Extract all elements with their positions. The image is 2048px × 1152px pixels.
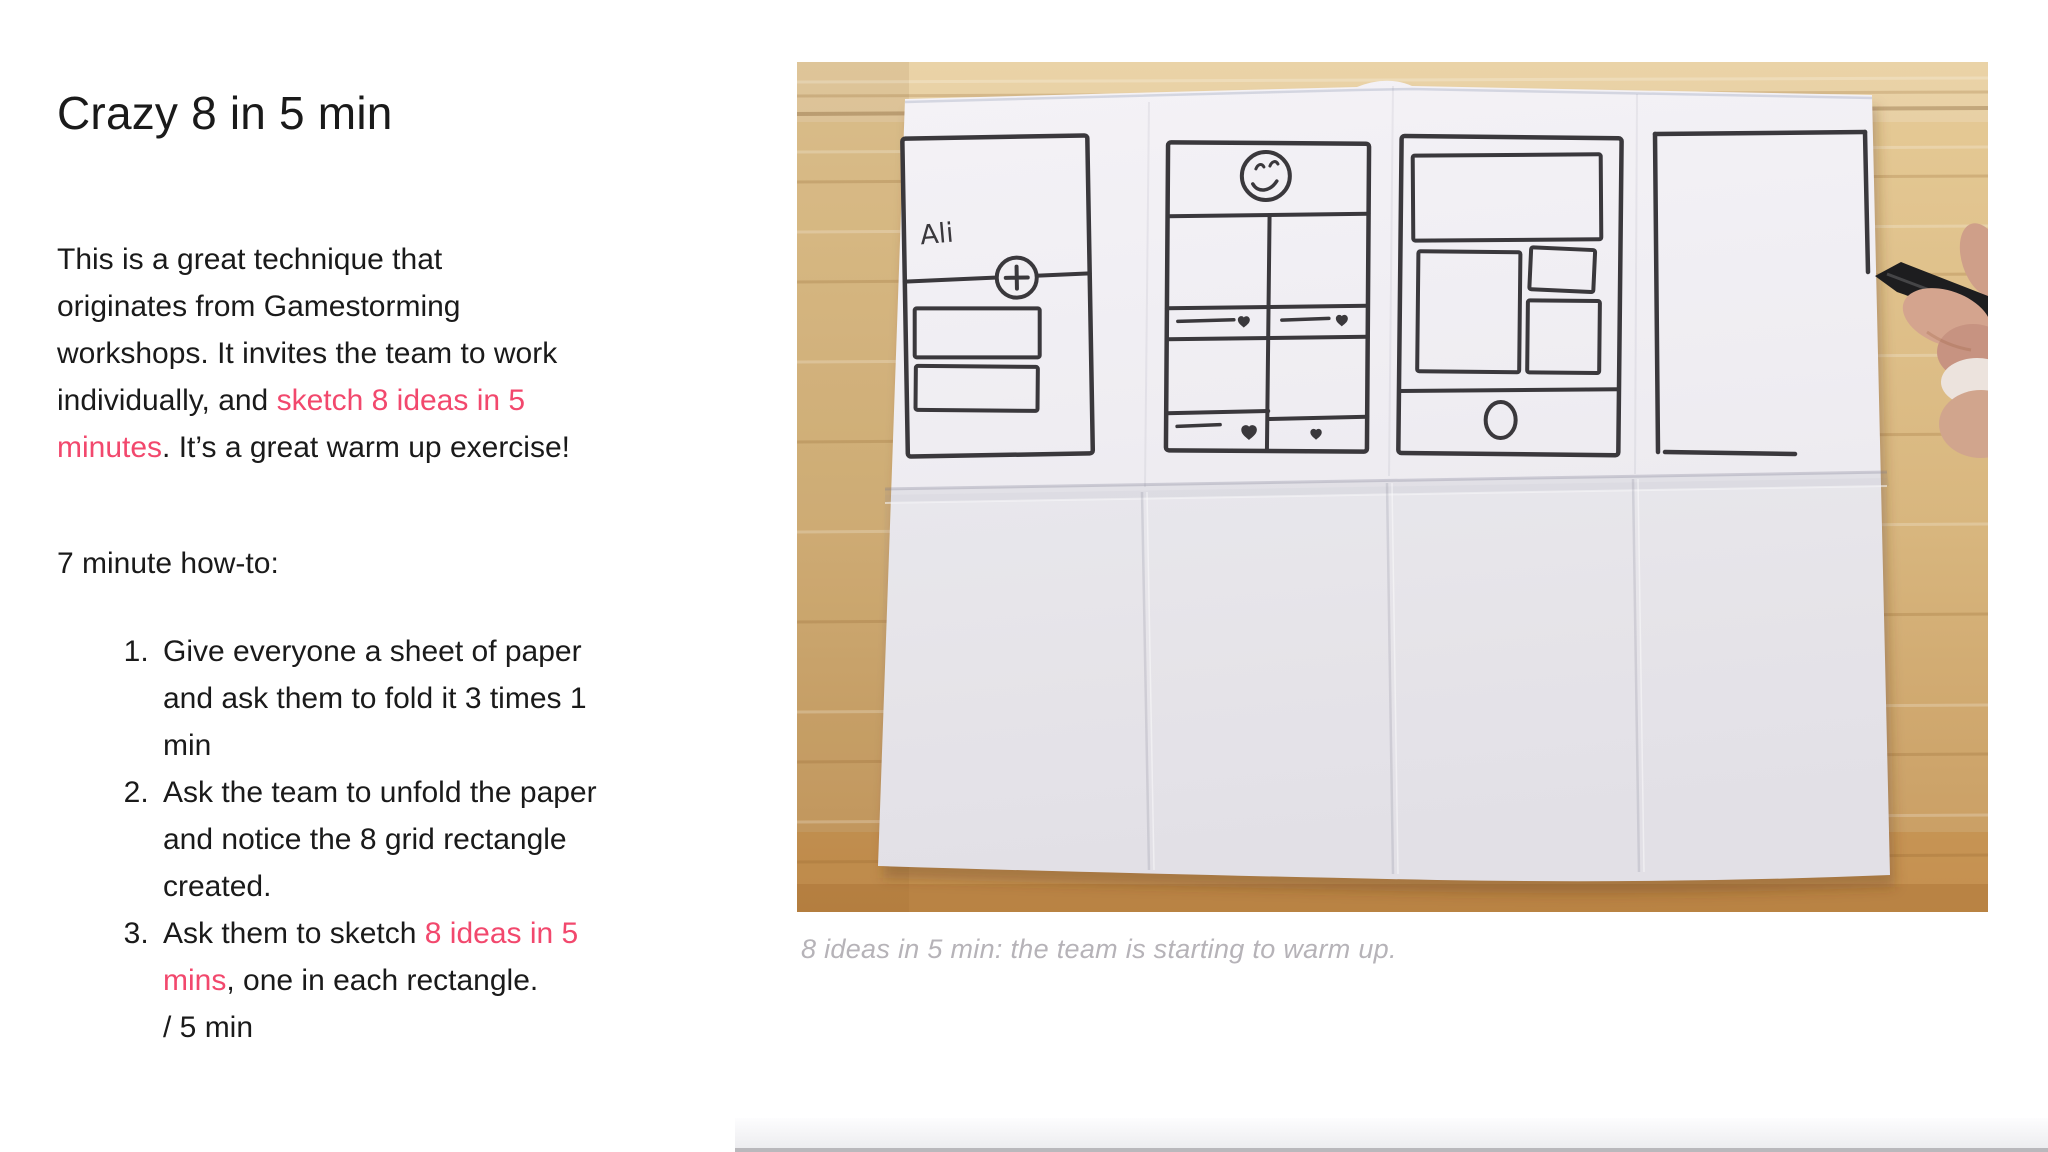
bottom-chrome-bar	[735, 1118, 2048, 1152]
text-segment: 8 ideas in 5	[425, 917, 578, 950]
howto-step-1: Give everyone a sheet of paperand ask th…	[157, 628, 777, 769]
text-segment: and notice the 8 grid rectangle	[163, 823, 567, 856]
text-segment: Ask the team to unfold the paper	[163, 776, 597, 809]
text-segment: min	[163, 729, 211, 762]
text-segment: and ask them to fold it 3 times 1	[163, 682, 587, 715]
howto-step-3: Ask them to sketch 8 ideas in 5mins, one…	[157, 910, 777, 1051]
text-segment: This is a great technique that	[57, 243, 442, 276]
folded-paper	[878, 81, 1890, 881]
text-segment: Ask them to sketch	[163, 917, 425, 950]
slide-canvas: Crazy 8 in 5 min This is a great techniq…	[0, 0, 2048, 1152]
text-segment: , one in each rectangle.	[226, 964, 538, 997]
text-segment: originates from Gamestorming	[57, 290, 460, 323]
workshop-photo: Ali	[797, 62, 1988, 912]
ali-label: Ali	[919, 218, 955, 252]
text-segment: created.	[163, 870, 271, 903]
howto-step-2: Ask the team to unfold the paperand noti…	[157, 769, 777, 910]
text-segment: individually, and	[57, 384, 277, 417]
text-segment: workshops. It invites the team to work	[57, 337, 557, 370]
text-segment: Give everyone a sheet of paper	[163, 635, 582, 668]
intro-paragraph: This is a great technique thatoriginates…	[57, 236, 677, 471]
workshop-photo-figure: Ali	[797, 62, 1988, 965]
photo-caption: 8 ideas in 5 min: the team is starting t…	[797, 934, 1988, 965]
text-segment: mins	[163, 964, 226, 997]
text-segment: / 5 min	[163, 1011, 253, 1044]
howto-heading: 7 minute how-to:	[57, 540, 279, 587]
text-segment: sketch 8 ideas in 5	[277, 384, 525, 417]
howto-steps-list: Give everyone a sheet of paperand ask th…	[57, 628, 777, 1051]
text-segment: . It’s a great warm up exercise!	[162, 431, 570, 464]
text-segment: minutes	[57, 431, 162, 464]
page-title: Crazy 8 in 5 min	[57, 86, 393, 140]
